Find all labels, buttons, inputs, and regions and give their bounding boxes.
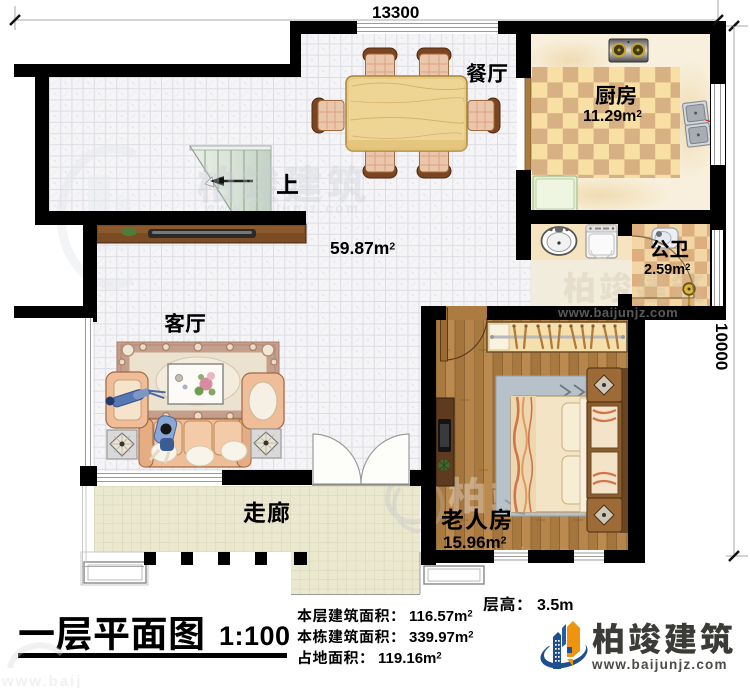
svg-text:15.96m2: 15.96m2 — [443, 533, 507, 552]
svg-text:3.5m: 3.5m — [537, 597, 573, 614]
svg-text:11.29m2: 11.29m2 — [583, 108, 642, 125]
svg-text:10000: 10000 — [712, 323, 731, 370]
svg-text:1:100: 1:100 — [219, 621, 291, 651]
svg-text:116.57m2: 116.57m2 — [409, 608, 473, 625]
svg-text:www.baijunjz.com: www.baijunjz.com — [591, 657, 728, 672]
svg-text:59.87m2: 59.87m2 — [330, 238, 395, 258]
svg-text:2.59m2: 2.59m2 — [644, 262, 690, 278]
svg-text:www.baij: www.baij — [1, 673, 82, 688]
svg-text:www.baijunjz.com: www.baijunjz.com — [557, 305, 678, 320]
svg-text:13300: 13300 — [372, 3, 419, 22]
svg-text:119.16m2: 119.16m2 — [378, 650, 442, 667]
svg-text:339.97m2: 339.97m2 — [409, 629, 474, 646]
